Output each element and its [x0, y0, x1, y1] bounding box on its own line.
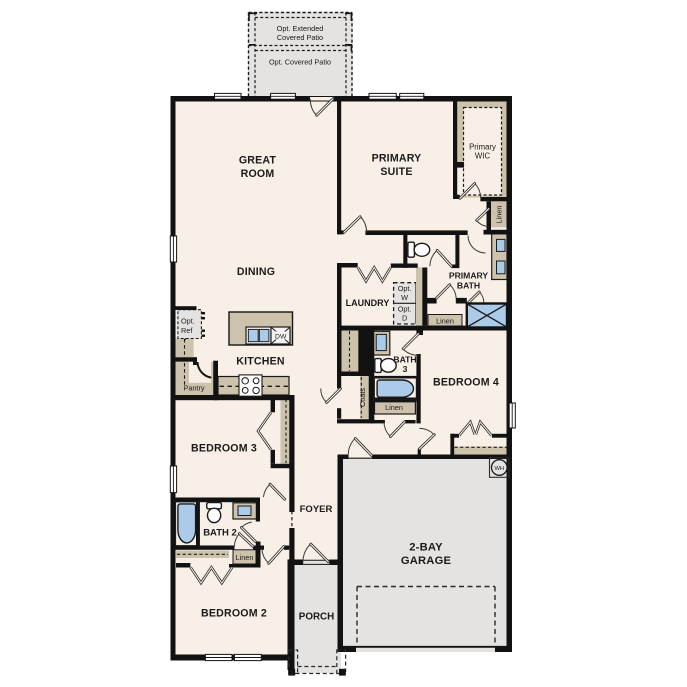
svg-text:GARAGE: GARAGE	[401, 555, 452, 567]
svg-text:SUITE: SUITE	[380, 166, 412, 178]
svg-text:KITCHEN: KITCHEN	[236, 356, 284, 368]
svg-text:BATH: BATH	[393, 355, 416, 365]
svg-text:Opt.: Opt.	[181, 317, 195, 326]
svg-text:2-BAY: 2-BAY	[409, 542, 443, 554]
svg-text:GREAT: GREAT	[239, 155, 277, 167]
svg-text:Pantry: Pantry	[183, 384, 204, 393]
svg-text:BATH 2: BATH 2	[203, 528, 237, 539]
svg-text:BATH: BATH	[457, 281, 480, 291]
svg-text:DINING: DINING	[237, 266, 275, 278]
svg-text:BEDROOM 4: BEDROOM 4	[433, 377, 499, 389]
svg-text:D: D	[402, 314, 407, 323]
svg-text:BEDROOM 2: BEDROOM 2	[201, 608, 267, 620]
svg-text:BEDROOM 3: BEDROOM 3	[191, 443, 257, 455]
svg-text:Opt.: Opt.	[398, 305, 412, 314]
svg-text:PRIMARY: PRIMARY	[449, 271, 489, 281]
svg-text:PRIMARY: PRIMARY	[372, 153, 422, 165]
svg-text:Opt.: Opt.	[398, 284, 412, 293]
svg-text:WH: WH	[494, 466, 504, 472]
svg-text:Coats: Coats	[358, 388, 367, 407]
svg-text:LAUNDRY: LAUNDRY	[346, 298, 390, 308]
svg-text:PORCH: PORCH	[299, 612, 334, 623]
svg-text:DW: DW	[275, 333, 287, 340]
svg-text:Opt. Covered Patio: Opt. Covered Patio	[269, 58, 331, 67]
svg-text:Covered Patio: Covered Patio	[277, 33, 323, 42]
svg-text:FOYER: FOYER	[300, 504, 333, 515]
svg-text:Ref: Ref	[181, 326, 193, 335]
svg-text:Linen: Linen	[495, 206, 504, 224]
svg-text:Opt. Extended: Opt. Extended	[277, 24, 324, 33]
svg-text:Linen: Linen	[385, 403, 403, 412]
svg-text:WIC: WIC	[475, 152, 491, 161]
svg-text:Primary: Primary	[469, 143, 496, 152]
svg-text:ROOM: ROOM	[241, 168, 275, 180]
svg-text:3: 3	[403, 364, 408, 374]
svg-text:W: W	[401, 293, 408, 302]
svg-text:Linen: Linen	[436, 316, 454, 325]
svg-text:Linen: Linen	[236, 553, 254, 562]
